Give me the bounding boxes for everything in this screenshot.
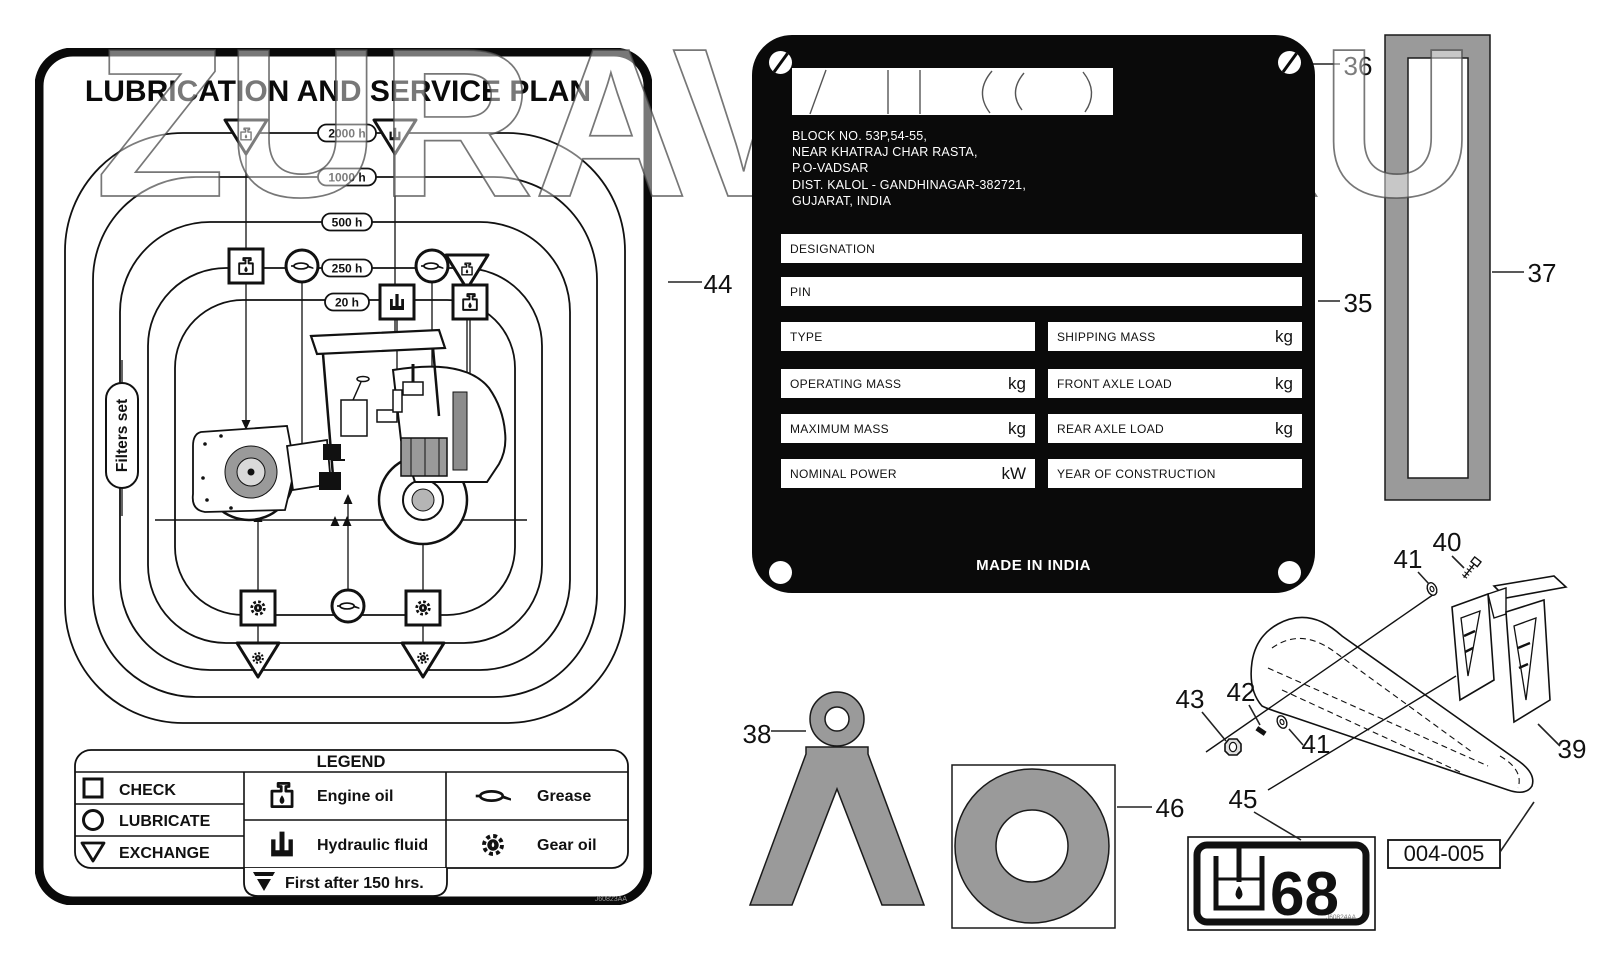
field-designation: DESIGNATION <box>781 234 1302 263</box>
manufacturer-logo-area <box>792 68 1113 115</box>
manufacturer-address: BLOCK NO. 53P,54-55, NEAR KHATRAJ CHAR R… <box>792 128 1026 209</box>
field-front-axle-load: FRONT AXLE LOAD kg <box>1048 369 1302 398</box>
watermark-fragments <box>792 68 1113 115</box>
field-year-of-construction: YEAR OF CONSTRUCTION <box>1048 459 1302 488</box>
parts-catalog-page: LUBRICATION AND SERVICE PLAN <box>0 0 1610 972</box>
address-line: GUJARAT, INDIA <box>792 193 1026 209</box>
field-nominal-power: NOMINAL POWER kW <box>781 459 1035 488</box>
field-type: TYPE <box>781 322 1035 351</box>
field-pin: PIN <box>781 277 1302 306</box>
address-line: P.O-VADSAR <box>792 160 1026 176</box>
screw-icon <box>769 51 792 74</box>
address-line: DIST. KALOL - GANDHINAGAR-382721, <box>792 177 1026 193</box>
address-line: BLOCK NO. 53P,54-55, <box>792 128 1026 144</box>
made-in-label: MADE IN INDIA <box>752 557 1315 574</box>
field-operating-mass: OPERATING MASS kg <box>781 369 1035 398</box>
machine-nameplate: BLOCK NO. 53P,54-55, NEAR KHATRAJ CHAR R… <box>752 35 1315 593</box>
field-maximum-mass: MAXIMUM MASS kg <box>781 414 1035 443</box>
address-line: NEAR KHATRAJ CHAR RASTA, <box>792 144 1026 160</box>
field-shipping-mass: SHIPPING MASS kg <box>1048 322 1302 351</box>
screw-icon <box>1278 51 1301 74</box>
field-rear-axle-load: REAR AXLE LOAD kg <box>1048 414 1302 443</box>
